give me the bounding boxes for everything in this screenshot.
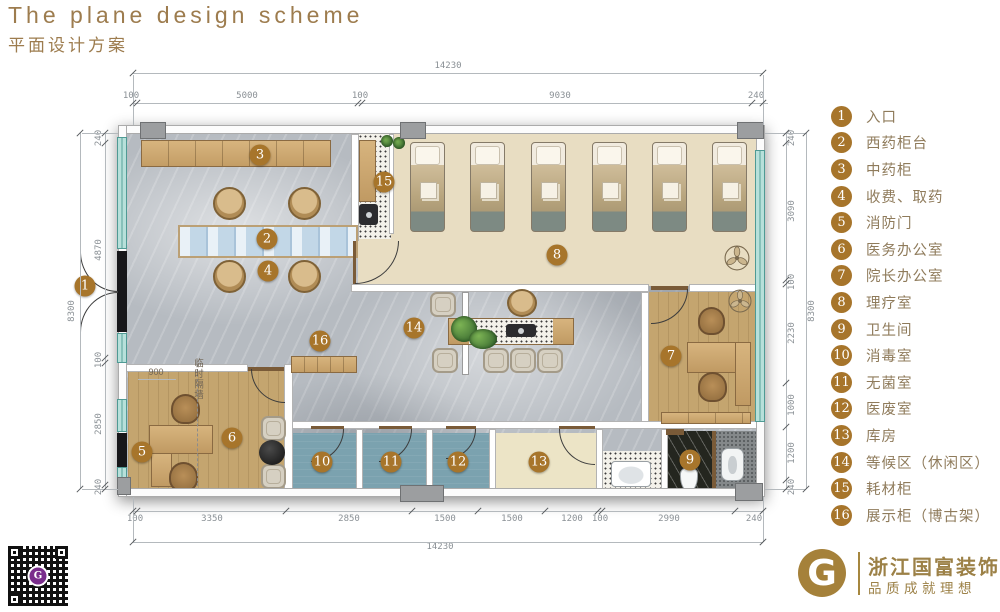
plan-number-badge: 12 (448, 452, 469, 473)
washbasin (611, 461, 651, 487)
legend-number-badge: 2 (831, 132, 852, 153)
treatment-bed (410, 142, 445, 232)
design-sheet: The plane design scheme 平面设计方案 (0, 0, 1000, 612)
legend-label: 理疗室 (866, 292, 913, 313)
display-shelf (291, 356, 357, 373)
legend-label: 收费、取药 (866, 186, 944, 207)
legend-number-badge: 4 (831, 186, 852, 207)
niche-sink (359, 204, 378, 225)
legend-number-badge: 14 (831, 452, 852, 473)
consumables-cabinet (359, 140, 376, 202)
wall-top (118, 125, 765, 134)
legend-number-badge: 6 (831, 239, 852, 260)
plan-number-badge: 8 (547, 245, 568, 266)
legend-item: 4收费、取药 (831, 183, 990, 210)
legend-number-badge: 1 (831, 106, 852, 127)
qr-code: G (8, 546, 68, 606)
legend-number-badge: 3 (831, 159, 852, 180)
dimension-label: 1000 (787, 394, 797, 416)
window (117, 137, 127, 249)
legend-label: 无菌室 (866, 372, 913, 393)
dimension-line (133, 497, 134, 542)
treatment-bed (712, 142, 747, 232)
legend-label: 医废室 (866, 398, 913, 419)
legend-number-badge: 7 (831, 265, 852, 286)
dimension-line (786, 133, 787, 489)
dimension-line (80, 133, 81, 489)
legend-item: 5消防门 (831, 209, 990, 236)
treatment-bed (531, 142, 566, 232)
legend-number-badge: 15 (831, 478, 852, 499)
dimension-line (133, 542, 763, 543)
legend-number-badge: 16 (831, 505, 852, 526)
legend-item: 16展示柜（博古架） (831, 502, 990, 529)
qr-center-logo: G (28, 566, 49, 587)
plan-number-badge: 2 (257, 229, 278, 250)
dimension-line (82, 489, 118, 490)
legend-label: 库房 (866, 425, 897, 446)
legend-label: 入口 (866, 106, 897, 127)
legend-label: 西药柜台 (866, 132, 928, 153)
plan-number-badge: 6 (222, 428, 243, 449)
dimension-label: 9030 (549, 91, 571, 101)
dimension-label: 1200 (561, 514, 583, 524)
legend-number-badge: 12 (831, 398, 852, 419)
legend-item: 1入口 (831, 103, 990, 130)
dimension-line (133, 511, 763, 512)
dimension-line (105, 133, 106, 489)
legend-label: 展示柜（博古架） (866, 505, 990, 526)
page-title-en: The plane design scheme (8, 2, 363, 29)
legend-number-badge: 9 (831, 319, 852, 340)
herb-cabinet (141, 140, 331, 167)
treatment-bed (652, 142, 687, 232)
dimension-line (763, 497, 764, 542)
plan-annotation: 临时隔墙 (190, 358, 204, 400)
legend-label: 等候区（休闲区） (866, 452, 990, 473)
legend-label: 院长办公室 (866, 265, 944, 286)
window (117, 399, 127, 432)
treatment-bed (592, 142, 627, 232)
plan-annotation: 900 (148, 367, 163, 377)
legend-number-badge: 13 (831, 425, 852, 446)
bathroom-divider (712, 431, 716, 491)
dimension-label: 240 (748, 91, 764, 101)
ceiling-fan-icon (724, 245, 750, 271)
legend-item: 9卫生间 (831, 316, 990, 343)
legend-item: 6医务办公室 (831, 236, 990, 263)
page-title-zh: 平面设计方案 (8, 31, 128, 56)
window (755, 150, 765, 422)
dimension-label: 100 (127, 514, 143, 524)
office-fan-icon (728, 289, 752, 313)
legend-item: 14等候区（休闲区） (831, 449, 990, 476)
plan-number-badge: 14 (404, 318, 425, 339)
treatment-bed (470, 142, 505, 232)
plan-number-badge: 13 (529, 452, 550, 473)
legend-number-badge: 5 (831, 212, 852, 233)
plan-number-badge: 15 (374, 172, 395, 193)
dimension-label: 8300 (67, 300, 77, 322)
plan-number-badge: 5 (132, 442, 153, 463)
legend-item: 10消毒室 (831, 342, 990, 369)
legend-item: 7院长办公室 (831, 263, 990, 290)
plan-number-badge: 16 (310, 331, 331, 352)
entrance-door (117, 251, 127, 332)
logo-letter: G (807, 553, 837, 594)
plan-number-badge: 10 (312, 452, 333, 473)
dimension-label: 4870 (94, 239, 104, 261)
plan-number-badge: 3 (250, 145, 271, 166)
legend-item: 3中药柜 (831, 156, 990, 183)
dimension-tick (802, 485, 809, 492)
dimension-line (133, 73, 763, 74)
legend-label: 中药柜 (866, 159, 913, 180)
dimension-label: 14230 (434, 61, 461, 71)
legend-number-badge: 11 (831, 372, 852, 393)
dimension-tick (759, 538, 766, 545)
dimension-label: 100 (592, 514, 608, 524)
plan-number-badge: 4 (258, 261, 279, 282)
dimension-line (138, 379, 176, 380)
legend-item: 15耗材柜 (831, 475, 990, 502)
dimension-label: 14230 (426, 542, 453, 552)
company-logo: G (798, 549, 846, 597)
dimension-label: 2990 (658, 514, 680, 524)
floor-plan (118, 125, 765, 497)
company-slogan: 品质成就理想 (868, 577, 976, 597)
legend-item: 2西药柜台 (831, 130, 990, 157)
dimension-label: 2230 (787, 322, 797, 344)
dimension-label: 2850 (94, 413, 104, 435)
legend-item: 11无菌室 (831, 369, 990, 396)
legend-label: 消毒室 (866, 345, 913, 366)
plan-number-badge: 7 (661, 346, 682, 367)
legend-label: 消防门 (866, 212, 913, 233)
dimension-label: 240 (746, 514, 762, 524)
dimension-line (806, 133, 807, 489)
dimension-line (133, 103, 768, 104)
dimension-label: 2850 (338, 514, 360, 524)
legend-label: 医务办公室 (866, 239, 944, 260)
legend-item: 8理疗室 (831, 289, 990, 316)
plan-number-badge: 11 (381, 452, 402, 473)
medical-office-desk (149, 425, 213, 454)
legend-number-badge: 8 (831, 292, 852, 313)
legend: 1入口2西药柜台3中药柜4收费、取药5消防门6医务办公室7院长办公室8理疗室9卫… (831, 103, 990, 529)
plan-number-badge: 9 (680, 450, 701, 471)
legend-number-badge: 10 (831, 345, 852, 366)
window (117, 333, 127, 363)
fire-door (117, 433, 127, 467)
dimension-label: 1200 (787, 442, 797, 464)
dimension-label: 1500 (434, 514, 456, 524)
footer-divider (858, 552, 860, 595)
plan-number-badge: 1 (75, 276, 96, 297)
legend-label: 卫生间 (866, 319, 913, 340)
legend-label: 耗材柜 (866, 478, 913, 499)
squat-toilet (721, 448, 744, 481)
dimension-label: 1500 (501, 514, 523, 524)
legend-item: 13库房 (831, 422, 990, 449)
company-name: 浙江国富装饰 (868, 551, 1000, 580)
dimension-label: 8300 (807, 300, 817, 322)
dimension-label: 3090 (787, 200, 797, 222)
dimension-line (82, 133, 118, 134)
tea-set (506, 324, 536, 337)
dimension-label: 5000 (236, 91, 258, 101)
dimension-label: 3350 (201, 514, 223, 524)
legend-item: 12医废室 (831, 396, 990, 423)
